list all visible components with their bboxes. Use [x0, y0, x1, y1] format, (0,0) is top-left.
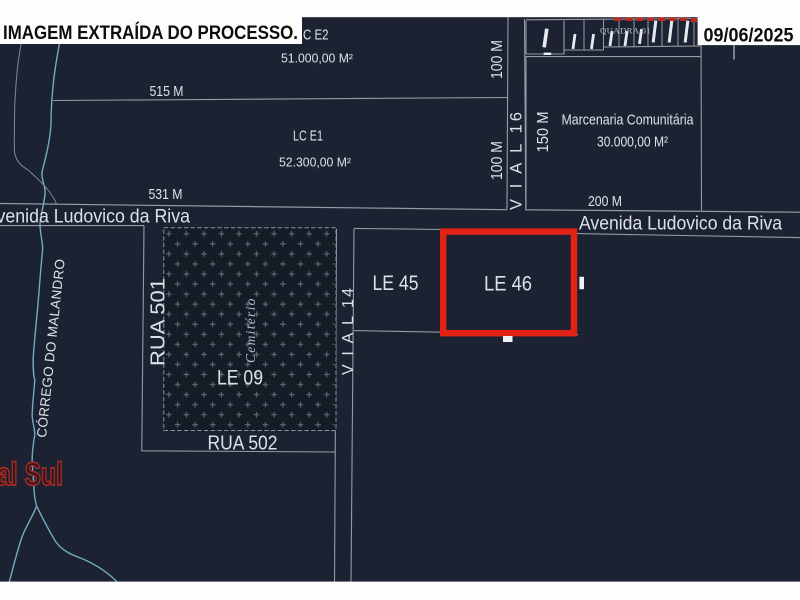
- svg-text:LE 09: LE 09: [217, 367, 263, 390]
- svg-text:09/06/2025: 09/06/2025: [704, 25, 794, 47]
- svg-text:Cemitério: Cemitério: [243, 297, 258, 363]
- svg-text:LC E1: LC E1: [293, 129, 323, 145]
- svg-text:LE 45: LE 45: [373, 272, 419, 295]
- svg-text:RUA 502: RUA 502: [208, 433, 278, 455]
- svg-text:RUA 501: RUA 501: [147, 278, 170, 366]
- svg-text:531 M: 531 M: [149, 186, 183, 203]
- svg-text:IMAGEM EXTRAÍDA DO PROCESSO.: IMAGEM EXTRAÍDA DO PROCESSO.: [3, 21, 298, 44]
- svg-text:C E2: C E2: [303, 28, 329, 44]
- svg-text:Avenida Ludovico da Riva: Avenida Ludovico da Riva: [579, 213, 782, 235]
- svg-text:al Sul: al Sul: [0, 456, 63, 492]
- svg-text:100 M: 100 M: [489, 141, 506, 180]
- svg-text:Avenida Ludovico da Riva: Avenida Ludovico da Riva: [0, 206, 190, 228]
- svg-text:150 M: 150 M: [535, 112, 552, 153]
- svg-text:LE 46: LE 46: [484, 273, 532, 296]
- svg-text:QUADRA 01: QUADRA 01: [600, 26, 651, 36]
- svg-text:100 M: 100 M: [489, 40, 506, 79]
- svg-text:30.000,00 M²: 30.000,00 M²: [597, 135, 668, 151]
- svg-text:V I A L 14: V I A L 14: [340, 288, 357, 375]
- svg-text:52.300,00 M²: 52.300,00 M²: [279, 155, 352, 170]
- svg-text:Marcenaria Comunitária: Marcenaria Comunitária: [562, 112, 695, 129]
- svg-text:V I A L 16: V I A L 16: [508, 112, 526, 210]
- svg-text:51.000,00 M²: 51.000,00 M²: [281, 51, 354, 66]
- svg-text:515 M: 515 M: [150, 83, 184, 100]
- svg-text:200 M: 200 M: [588, 193, 622, 210]
